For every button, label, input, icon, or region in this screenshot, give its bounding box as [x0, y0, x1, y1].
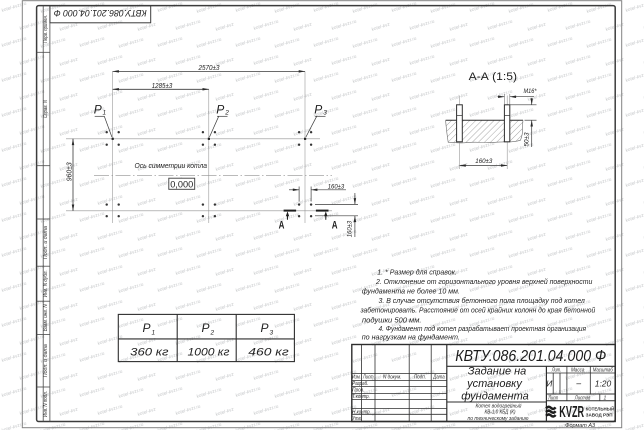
- svg-text:2. Отклонение от горизонтально: 2. Отклонение от горизонтального уровня …: [375, 277, 592, 286]
- svg-text:Инв. N дубл.: Инв. N дубл.: [43, 270, 49, 297]
- svg-text:160±3: 160±3: [328, 183, 345, 190]
- svg-text:по техническому заданию: по техническому заданию: [468, 416, 530, 422]
- svg-text:1000 кг: 1000 кг: [188, 346, 231, 358]
- svg-text:И: И: [546, 378, 553, 388]
- svg-text:установку: установку: [466, 378, 523, 390]
- svg-text:Формат А3: Формат А3: [565, 423, 596, 429]
- svg-text:1285±3: 1285±3: [152, 81, 173, 90]
- svg-text:1: 1: [103, 109, 107, 116]
- svg-text:2570±3: 2570±3: [198, 63, 221, 72]
- svg-text:960±3: 960±3: [64, 162, 73, 182]
- svg-text:Масштаб: Масштаб: [593, 368, 613, 374]
- svg-text:КВТУ.086.201.04.000 Ф: КВТУ.086.201.04.000 Ф: [455, 348, 606, 365]
- svg-text:M16*: M16*: [524, 88, 537, 95]
- svg-text:Котел водогрейный: Котел водогрейный: [476, 403, 522, 410]
- svg-text:3. В случае отсутствия бетонно: 3. В случае отсутствия бетонного пола пл…: [379, 296, 586, 305]
- svg-text:Подп. и дата: Подп. и дата: [43, 344, 49, 377]
- svg-text:Листов: Листов: [574, 396, 591, 402]
- svg-text:забетонировать. Расстояние от: забетонировать. Расстояние от осей крайн…: [360, 306, 596, 315]
- svg-text:Утв.: Утв.: [352, 416, 362, 422]
- svg-text:–: –: [575, 378, 581, 388]
- svg-text:Подп.: Подп.: [414, 375, 426, 381]
- svg-text:2: 2: [210, 330, 215, 337]
- svg-text:Ось симметрии котла: Ось симметрии котла: [135, 161, 208, 170]
- svg-text:P: P: [261, 321, 269, 335]
- svg-text:Н.контр.: Н.контр.: [352, 409, 371, 415]
- svg-text:ЗАВОД РЭП: ЗАВОД РЭП: [586, 412, 614, 418]
- svg-text:50±3: 50±3: [524, 132, 531, 146]
- svg-text:360 кг: 360 кг: [130, 346, 169, 358]
- svg-text:Лист: Лист: [362, 374, 373, 380]
- svg-text:фундамента не более 10 мм.: фундамента не более 10 мм.: [362, 287, 460, 296]
- svg-text:Перв. примен.: Перв. примен.: [43, 15, 49, 43]
- svg-text:Справ. N: Справ. N: [43, 100, 49, 118]
- svg-text:1: 1: [604, 396, 607, 402]
- svg-text:Лист: Лист: [548, 396, 559, 402]
- svg-text:КВ-1,0 КБД (К): КВ-1,0 КБД (К): [485, 410, 516, 416]
- svg-text:KVZR: KVZR: [559, 404, 584, 421]
- svg-text:4. Фундамент под котел разраба: 4. Фундамент под котел разрабатывает про…: [379, 324, 587, 333]
- svg-text:Задание на: Задание на: [468, 366, 527, 378]
- svg-text:Т.контр.: Т.контр.: [352, 394, 370, 400]
- svg-text:A: A: [332, 220, 338, 232]
- svg-text:P: P: [202, 321, 210, 335]
- svg-text:по нагрузкам на фундамент.: по нагрузкам на фундамент.: [362, 333, 460, 342]
- svg-text:3: 3: [323, 109, 327, 116]
- svg-text:160±3: 160±3: [346, 220, 353, 237]
- svg-text:0,000: 0,000: [170, 179, 193, 189]
- svg-text:Лит.: Лит.: [551, 368, 561, 374]
- svg-text:A: A: [279, 220, 285, 232]
- svg-text:2: 2: [224, 109, 229, 116]
- svg-text:N докум.: N докум.: [383, 375, 402, 381]
- svg-text:160±3: 160±3: [475, 158, 492, 165]
- svg-text:460 кг: 460 кг: [248, 346, 289, 358]
- svg-text:Дата: Дата: [432, 375, 445, 381]
- svg-text:фундамента: фундамента: [461, 391, 529, 403]
- svg-text:P: P: [94, 102, 102, 116]
- svg-text:Инв. N подл.: Инв. N подл.: [43, 391, 49, 417]
- svg-text:Изм.: Изм.: [352, 374, 361, 380]
- svg-text:1: 1: [152, 330, 156, 337]
- svg-text:P: P: [314, 102, 322, 116]
- svg-text:Масса: Масса: [571, 368, 585, 374]
- svg-text:А-А (1:5): А-А (1:5): [469, 71, 517, 83]
- svg-text:Взам. инв. N: Взам. инв. N: [43, 304, 49, 331]
- svg-text:1:20: 1:20: [595, 379, 612, 389]
- svg-text:КВТУ.086.201.04.000 Ф: КВТУ.086.201.04.000 Ф: [54, 8, 147, 18]
- svg-text:Пров.: Пров.: [352, 388, 364, 394]
- svg-text:P: P: [143, 321, 151, 335]
- svg-text:Разраб.: Разраб.: [352, 381, 368, 387]
- svg-text:1. * Размер для справок.: 1. * Размер для справок.: [377, 267, 457, 276]
- svg-text:3: 3: [270, 330, 274, 337]
- svg-text:Подп. и дата: Подп. и дата: [43, 226, 49, 259]
- svg-text:P: P: [216, 102, 224, 116]
